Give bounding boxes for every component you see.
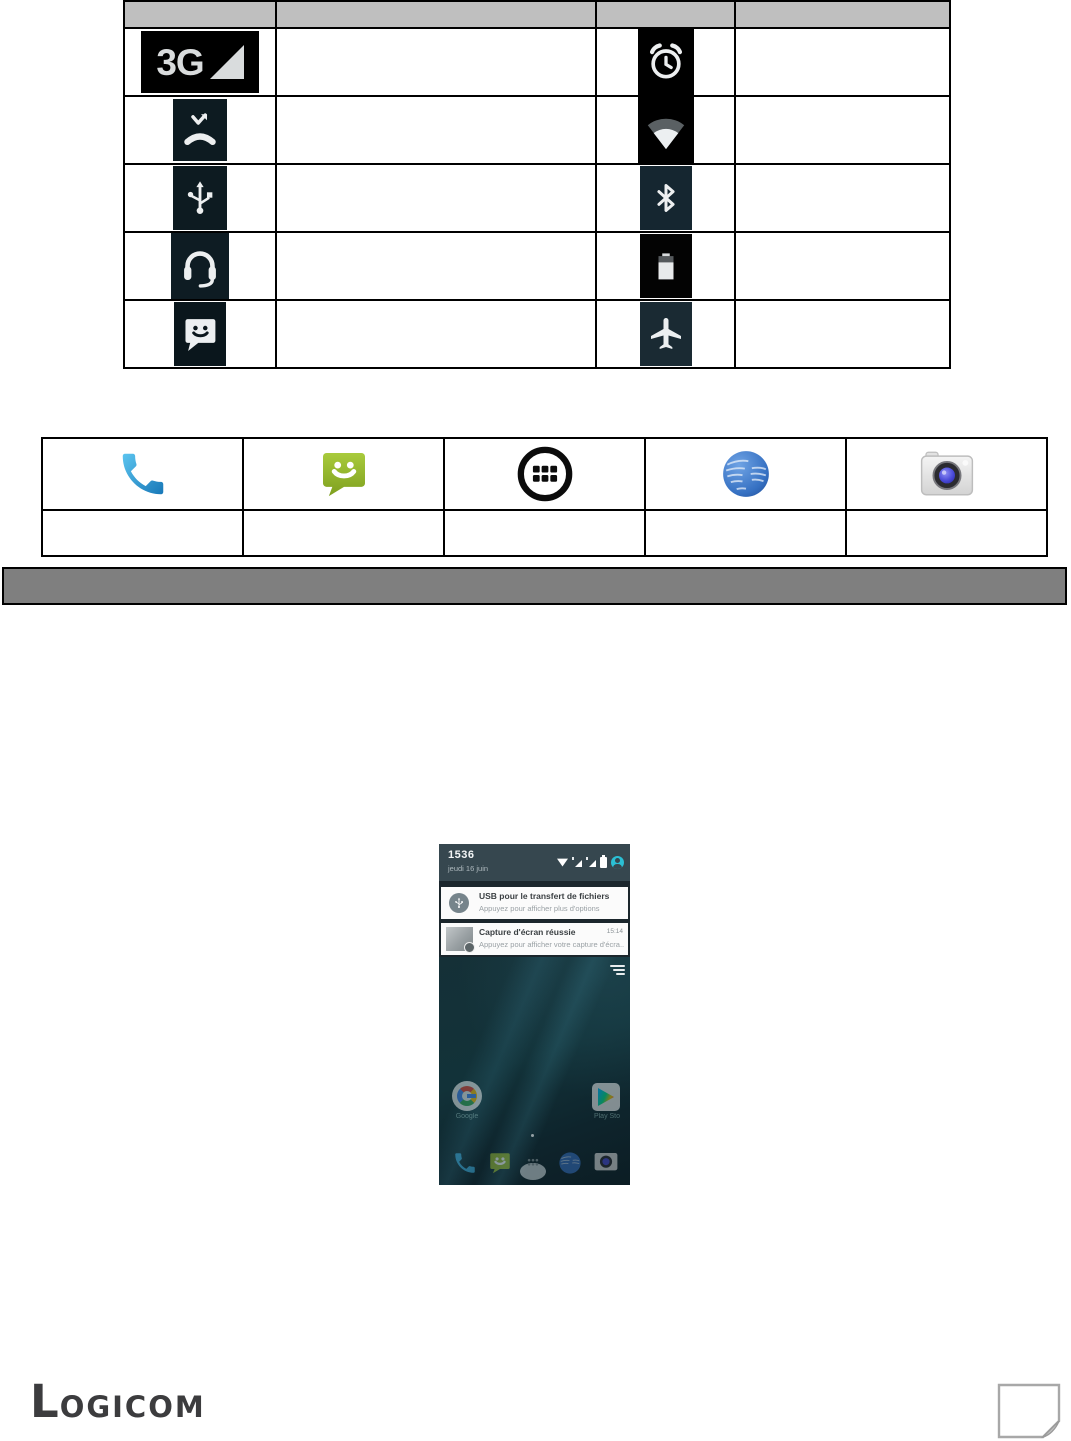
table-row (42, 510, 1047, 556)
status-icons-table: 3G (123, 0, 951, 369)
usb-icon (449, 893, 469, 913)
description-cell (735, 232, 950, 300)
alarm-clock-icon (638, 29, 694, 95)
phone-icon (452, 1150, 478, 1176)
app-icons-table (41, 437, 1048, 557)
notification-time: 15:14 (607, 928, 623, 935)
label-cell (846, 510, 1047, 556)
clock-text: 1536 (448, 849, 474, 861)
app-drawer-icon (520, 1150, 546, 1176)
browser-icon (557, 1150, 583, 1176)
logo-text-rest: OGICOM (60, 1390, 206, 1424)
notification-subtitle: Appuyez pour afficher plus d'options (479, 904, 600, 913)
wifi-icon (638, 97, 694, 163)
label-cell (645, 510, 846, 556)
signal-triangle (210, 45, 244, 79)
profile-icon (611, 856, 624, 869)
description-cell (735, 28, 950, 96)
page-curl-icon (997, 1383, 1061, 1441)
notification-title: USB pour le transfert de fichiers (479, 891, 609, 901)
section-divider-banner (2, 567, 1067, 605)
camera-icon (593, 1150, 619, 1176)
table-row (124, 232, 950, 300)
notification-screenshot: Capture d'écran réussie 15:14 Appuyez po… (441, 923, 628, 955)
wifi-icon (557, 858, 568, 867)
3g-label: 3G (156, 44, 203, 81)
label-cell (243, 510, 444, 556)
messaging-icon (487, 1150, 513, 1176)
messaging-icon (316, 446, 372, 502)
description-cell (735, 300, 950, 368)
battery-icon (600, 857, 607, 868)
description-cell (276, 28, 596, 96)
table-row (124, 164, 950, 232)
table-row: 3G (124, 28, 950, 96)
description-cell (735, 164, 950, 232)
app-drawer-icon (516, 445, 574, 503)
page-indicator-dot (531, 1134, 534, 1137)
notification-usb: USB pour le transfert de fichiers Appuye… (441, 887, 628, 919)
header-cell (596, 1, 735, 28)
airplane-mode-icon (640, 302, 692, 366)
shortcut-label: Play Sto (582, 1113, 630, 1120)
header-cell (124, 1, 276, 28)
description-cell (276, 300, 596, 368)
status-icon-cluster (557, 855, 624, 869)
screenshot-thumbnail (446, 927, 473, 951)
description-cell (276, 232, 596, 300)
label-cell (42, 510, 243, 556)
label-cell (444, 510, 645, 556)
description-cell (735, 96, 950, 164)
phone-icon (116, 447, 170, 501)
header-cell (276, 1, 596, 28)
signal-sim2-icon (586, 857, 596, 867)
missed-call-icon (173, 99, 227, 161)
battery-icon (640, 234, 692, 298)
description-cell (276, 164, 596, 232)
table-header-row (124, 1, 950, 28)
notification-subtitle: Appuyez pour afficher votre capture d'éc… (479, 940, 624, 949)
camera-icon (918, 449, 976, 499)
header-cell (735, 1, 950, 28)
logicom-logo: LOGICOM (30, 1379, 206, 1424)
logo-text-first: L (30, 1375, 60, 1428)
shortcut-label: Google (442, 1113, 492, 1120)
3g-signal-icon: 3G (141, 31, 259, 93)
google-folder-icon (452, 1081, 482, 1111)
manual-page: 3G (0, 0, 1071, 1441)
headset-icon (171, 233, 229, 299)
table-row (124, 300, 950, 368)
signal-sim1-icon (572, 857, 582, 867)
android-status-bar: 1536 jeudi 16 juin (439, 844, 630, 881)
table-row (124, 96, 950, 164)
description-cell (276, 96, 596, 164)
clear-all-notifications-icon (610, 965, 625, 977)
table-row (42, 438, 1047, 510)
usb-icon (173, 166, 227, 230)
date-text: jeudi 16 juin (448, 864, 488, 873)
phone-screenshot: 1536 jeudi 16 juin (439, 844, 630, 1185)
home-screen-wallpaper: Google Play Sto (439, 957, 630, 1185)
play-store-icon (592, 1083, 622, 1113)
bluetooth-icon (640, 166, 692, 230)
notification-title: Capture d'écran réussie (479, 927, 576, 937)
browser-icon (718, 446, 774, 502)
sms-icon (174, 302, 226, 366)
